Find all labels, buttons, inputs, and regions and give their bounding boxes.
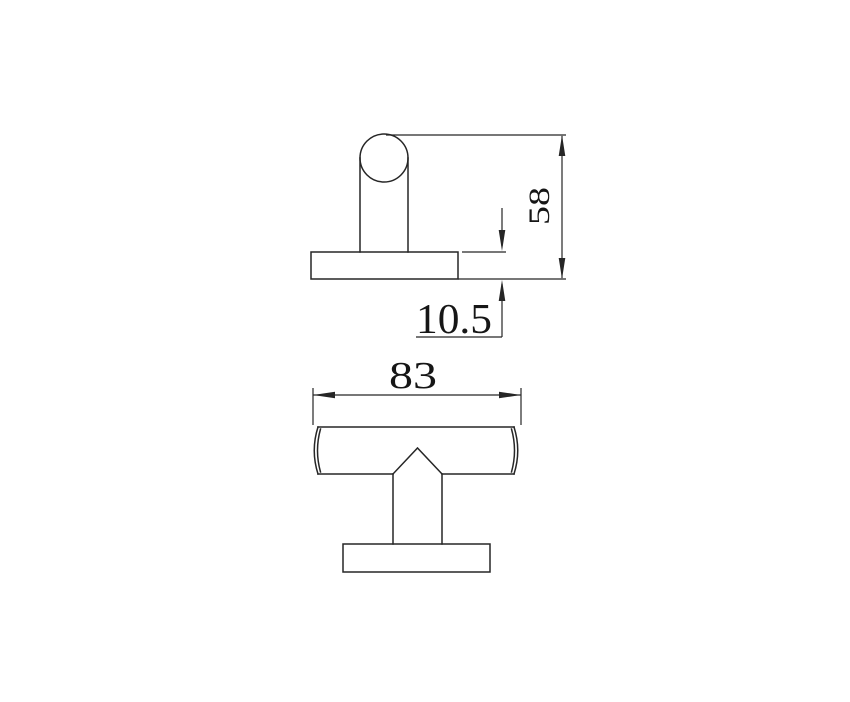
technical-drawing-svg: 58 10.5 83 (0, 0, 850, 702)
arrow-up-leader-icon (499, 280, 506, 301)
arrow-left-icon (313, 392, 335, 399)
front-view (314, 427, 518, 572)
side-view (311, 134, 458, 279)
arrow-right-icon (499, 392, 521, 399)
dim-label-thickness: 10.5 (416, 297, 492, 343)
knob-cap-circle (360, 134, 408, 182)
bar-left-end-arc-inner (318, 429, 321, 472)
cone-neck-chevron (393, 448, 442, 474)
dim-label-width: 83 (389, 355, 437, 397)
drawing-canvas: 58 10.5 83 (0, 0, 850, 702)
base-plate-side (311, 252, 458, 279)
arrow-up-icon (559, 135, 566, 156)
dim-label-height: 58 (523, 187, 556, 225)
arrow-down-icon (559, 258, 566, 279)
bar-right-end-arc-inner (512, 429, 515, 472)
arrow-down-leader-icon (499, 230, 506, 251)
base-plate-front (343, 544, 490, 572)
